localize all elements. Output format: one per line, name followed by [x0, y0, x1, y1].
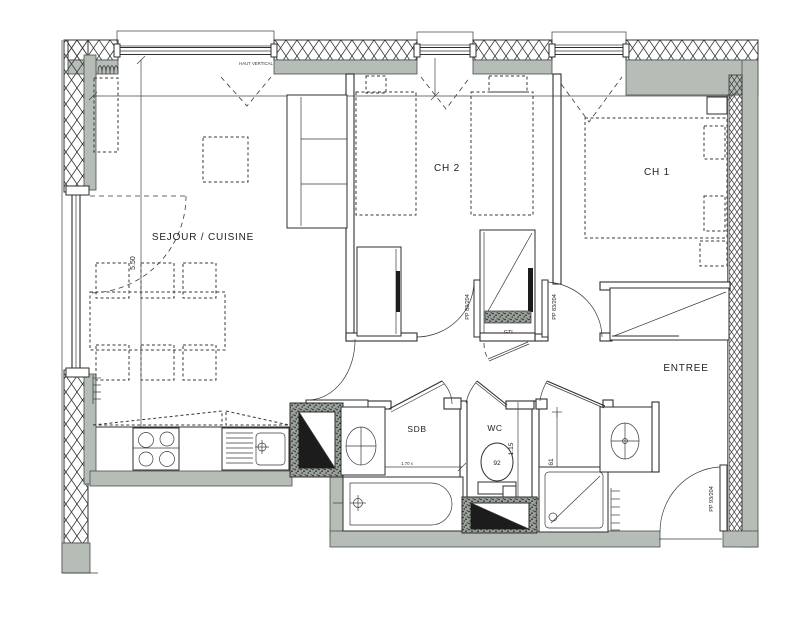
chair	[183, 345, 216, 380]
door-sdb	[389, 381, 452, 412]
kitchen-sink	[222, 428, 289, 470]
upper-cabinets-dashed	[226, 411, 289, 425]
pillow	[704, 126, 725, 159]
door-ch2: PP 83/204	[417, 280, 480, 337]
room-label-sejour: SEJOUR / CUISINE	[152, 232, 254, 243]
bed-ch2-right	[471, 92, 533, 215]
door-leaf	[474, 280, 480, 337]
bed-ch2-left	[356, 92, 416, 215]
wall-left-gray-lower	[84, 374, 96, 484]
gtl-hatch-band	[485, 311, 531, 323]
room-label-entree: ENTREE	[663, 363, 708, 374]
cabinet-left-wall	[94, 78, 118, 152]
dim-label-bathtub: 1.70 x	[401, 461, 414, 466]
room-label-ch2: CH 2	[434, 163, 460, 174]
sofa	[287, 95, 347, 228]
wall-ch2-ch1	[553, 74, 561, 284]
door-shower	[540, 381, 605, 408]
room-label-ch1: CH 1	[644, 167, 670, 178]
window-sejour-left	[66, 186, 186, 377]
wall-sejour-south	[90, 471, 292, 486]
door-label-ch1: PP 83/204	[552, 294, 558, 320]
chair	[183, 263, 216, 298]
upper-cabinets-dashed	[93, 411, 222, 425]
shower	[539, 467, 608, 532]
wall-gray-top2	[274, 60, 417, 74]
door-wc	[466, 381, 507, 407]
door-leaf	[542, 280, 548, 337]
closet-ch2	[357, 247, 401, 336]
window-swing-dashed	[421, 77, 470, 109]
room-shower: 61	[539, 381, 652, 532]
door-leaf	[720, 465, 727, 531]
floor-plan-page: SEJOUR / CUISINE 5.50 HAUT VERTICAL	[0, 0, 800, 635]
chair	[141, 263, 174, 298]
gtl-closet: GTL	[480, 230, 535, 361]
wall-wc-north-east	[506, 401, 534, 409]
wall-shower-jamb	[536, 399, 547, 409]
wall-right-hatch	[729, 75, 742, 533]
window-ch2	[414, 32, 476, 109]
radiator-entree	[611, 488, 620, 531]
wall-wc-north-jamb	[444, 398, 461, 409]
door-sejour	[306, 339, 368, 408]
door-label-ch2: PP 83/204	[465, 294, 471, 320]
door-ch1: PP 83/204	[542, 280, 602, 337]
wall-right-gray	[742, 60, 758, 547]
dim-label-shower: 61	[548, 458, 555, 466]
dresser	[700, 241, 727, 266]
duct-shaft-wc	[462, 497, 537, 533]
kitchen-counter	[93, 411, 290, 470]
wall-gray-top3	[473, 60, 552, 74]
coffee-table	[203, 137, 248, 182]
wall-top-seg4	[626, 40, 758, 60]
wall-entree-basin	[652, 402, 659, 472]
wall-left-bottom-stub	[62, 543, 90, 573]
washbasin-entree	[600, 407, 652, 472]
dim-label-toilet: 92	[493, 460, 501, 467]
room-label-sdb: SDB	[407, 424, 426, 434]
floor-plan-drawing: SEJOUR / CUISINE 5.50 HAUT VERTICAL	[0, 0, 800, 635]
door-label-entry: PP 93/204	[709, 486, 715, 512]
chair	[96, 263, 129, 298]
gtl-bottom-wall	[480, 333, 535, 341]
nightstand	[707, 97, 727, 114]
window-sejour-top	[114, 31, 277, 106]
window-swing-dashed	[221, 77, 271, 106]
pillow	[489, 76, 527, 92]
duct-shaft-kitchen	[290, 403, 343, 477]
room-label-wc: WC	[487, 423, 502, 433]
door-gtl	[484, 342, 529, 361]
balcony-door-swing	[90, 196, 186, 293]
dim-label-sejour: 5.50	[130, 256, 137, 270]
shutter-note: HAUT VERTICAL	[239, 61, 273, 66]
bed-ch1	[585, 118, 727, 238]
dining-table	[90, 292, 225, 350]
washbasin-sdb	[341, 407, 385, 475]
closet-entree	[610, 288, 729, 340]
wall-top-seg2	[274, 40, 417, 60]
dim-label-wc-width: 1.15	[508, 442, 515, 455]
wall-wc-east	[532, 401, 539, 499]
bathtub	[343, 477, 463, 531]
wall-bottom-right	[723, 531, 758, 547]
window-swing-dashed	[556, 77, 622, 122]
pillow	[366, 76, 386, 93]
wall-sdb-west	[330, 477, 343, 537]
stove	[133, 428, 179, 470]
entry-door: PP 93/204	[659, 465, 727, 539]
wall-top-seg3	[473, 40, 552, 60]
pillow	[704, 196, 725, 231]
